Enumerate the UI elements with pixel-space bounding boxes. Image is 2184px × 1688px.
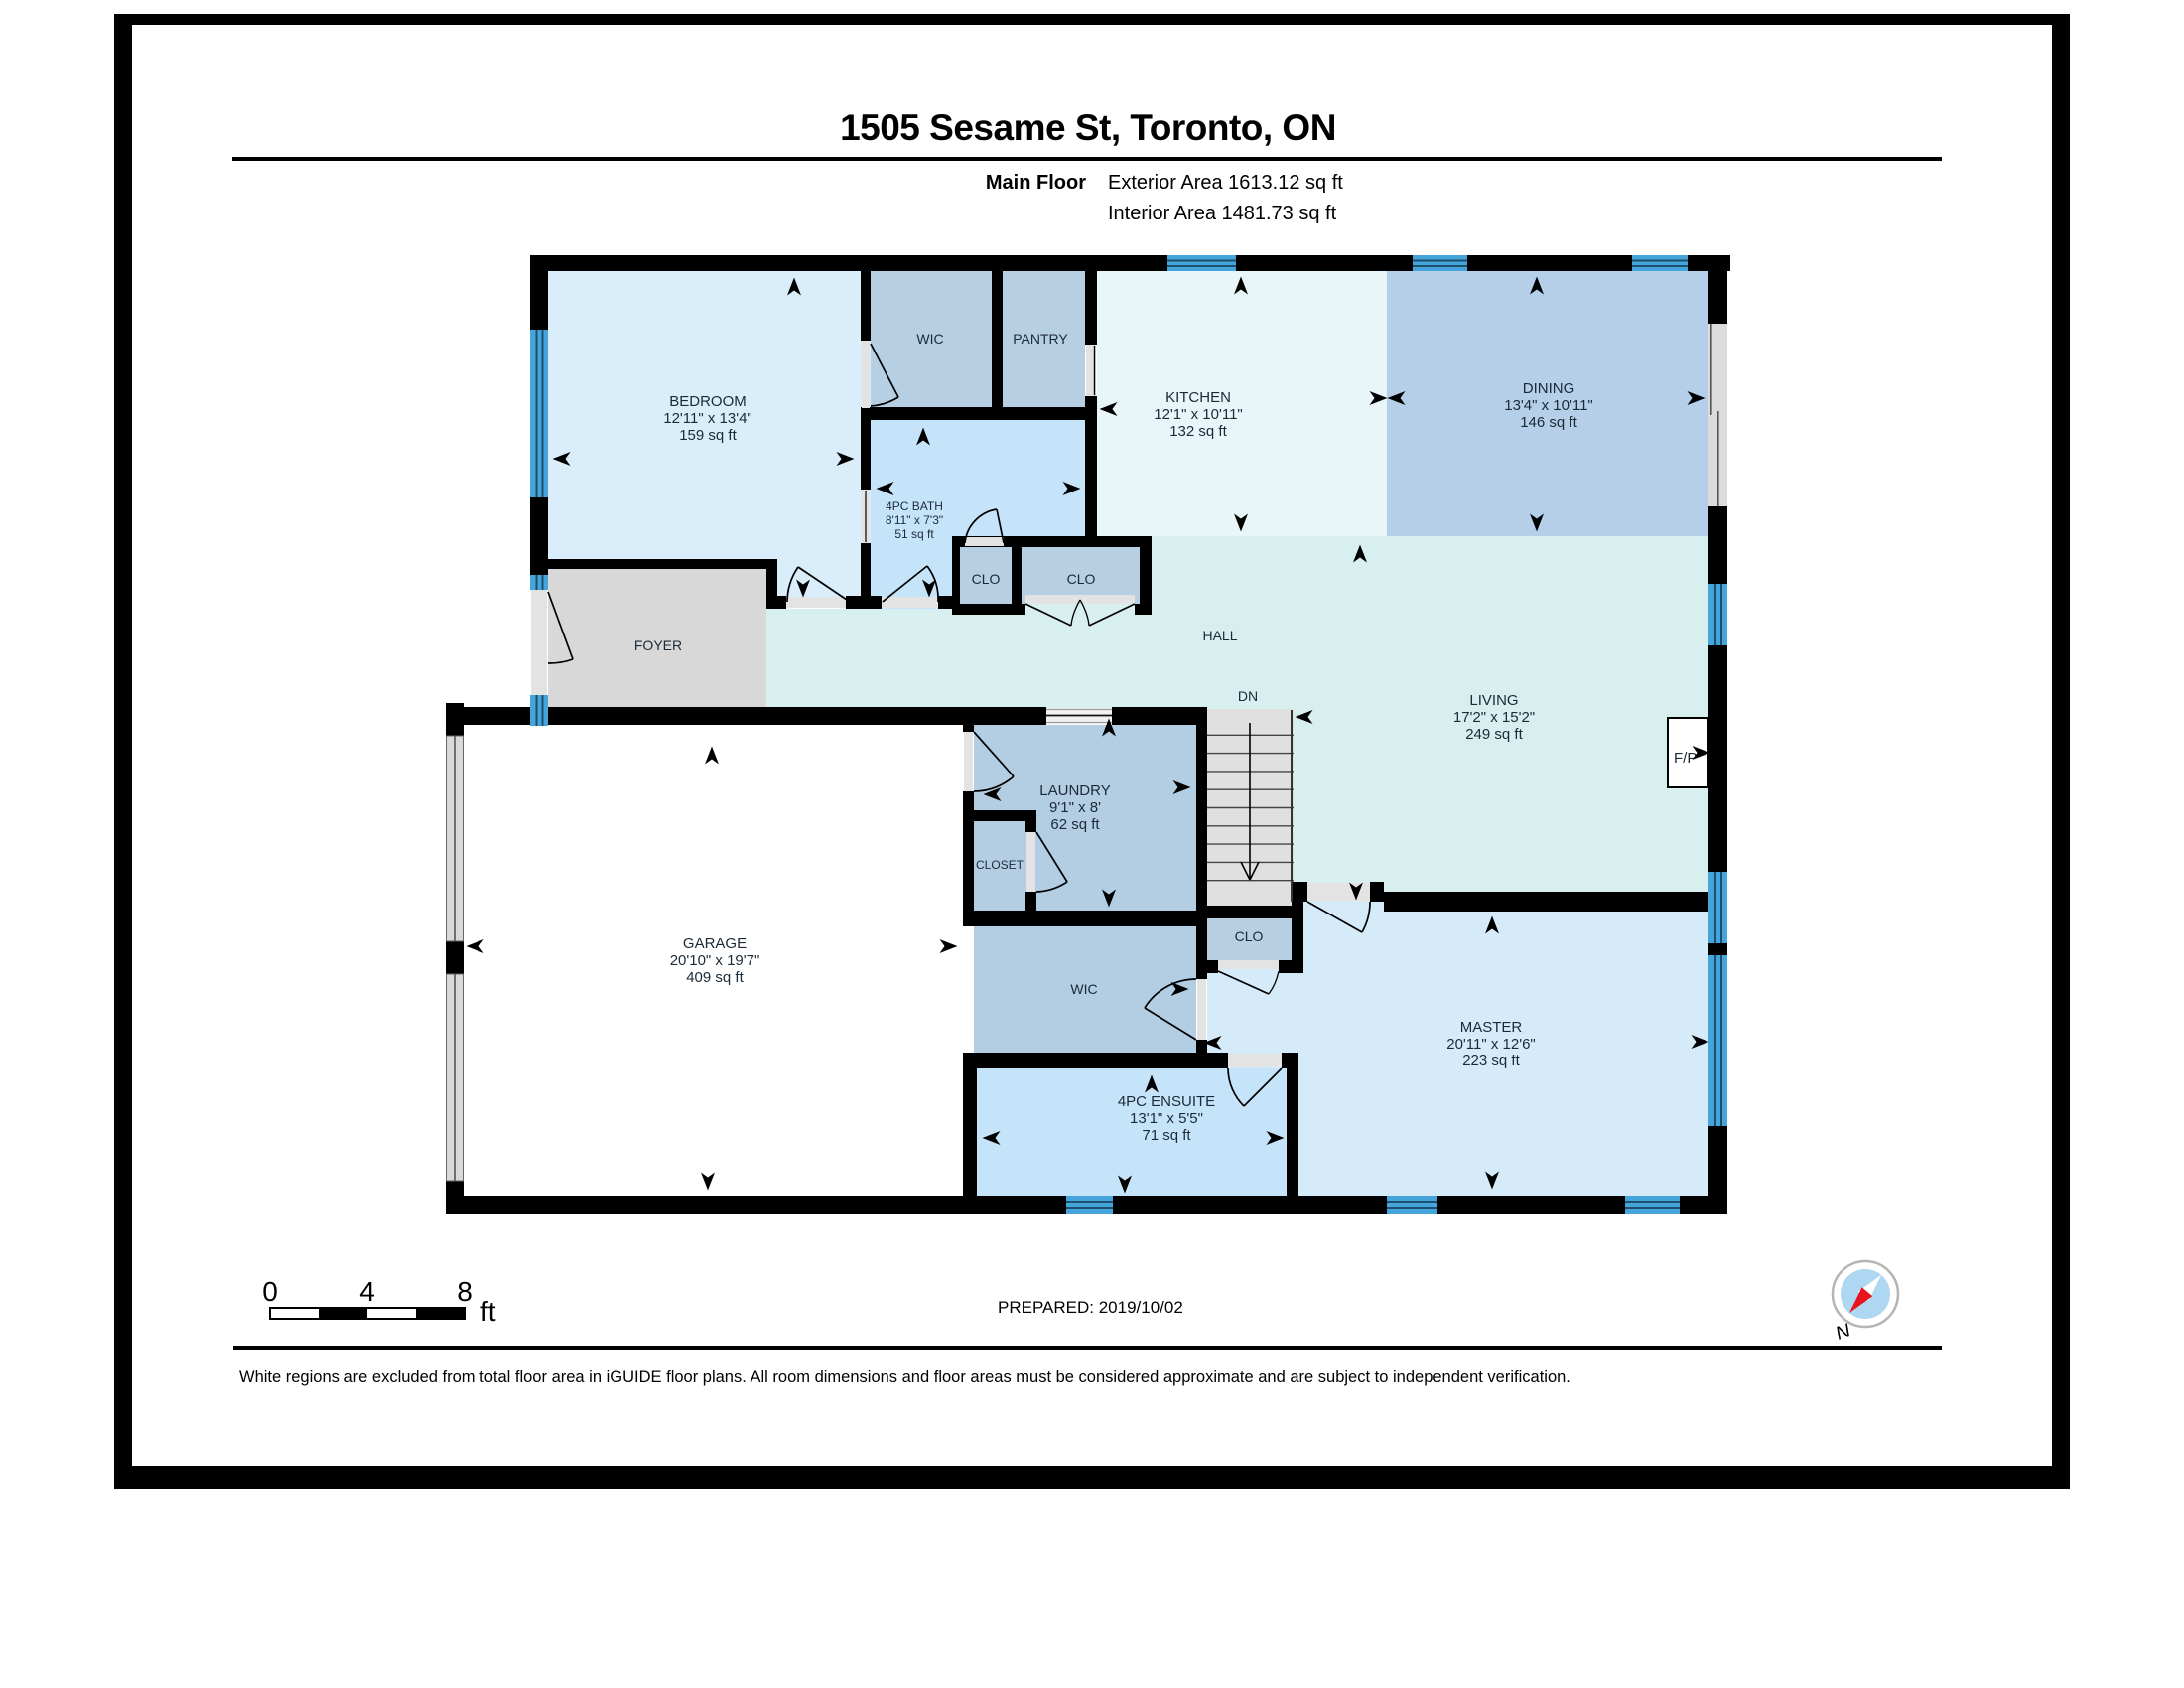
svg-text:LAUNDRY: LAUNDRY <box>1039 782 1110 799</box>
svg-text:ft: ft <box>480 1296 496 1327</box>
svg-text:12'1" x 10'11": 12'1" x 10'11" <box>1154 406 1243 423</box>
svg-text:KITCHEN: KITCHEN <box>1165 389 1231 406</box>
svg-text:LIVING: LIVING <box>1469 692 1518 709</box>
svg-text:GARAGE: GARAGE <box>683 935 747 952</box>
svg-text:1505 Sesame St, Toronto, ON: 1505 Sesame St, Toronto, ON <box>840 107 1336 148</box>
svg-text:CLOSET: CLOSET <box>976 858 1024 872</box>
svg-text:51 sq ft: 51 sq ft <box>894 527 934 541</box>
svg-text:WIC: WIC <box>916 331 943 347</box>
svg-text:CLO: CLO <box>1235 928 1264 944</box>
svg-text:146 sq ft: 146 sq ft <box>1520 414 1577 431</box>
svg-text:White regions are excluded fro: White regions are excluded from total fl… <box>239 1368 1570 1386</box>
svg-text:13'4" x 10'11": 13'4" x 10'11" <box>1504 397 1593 414</box>
svg-text:MASTER: MASTER <box>1460 1019 1523 1036</box>
svg-text:132 sq ft: 132 sq ft <box>1169 423 1227 440</box>
svg-text:PANTRY: PANTRY <box>1013 331 1068 347</box>
svg-text:12'11" x 13'4": 12'11" x 13'4" <box>663 410 752 427</box>
svg-text:409 sq ft: 409 sq ft <box>686 969 744 986</box>
svg-text:CLO: CLO <box>972 571 1001 587</box>
svg-text:159 sq ft: 159 sq ft <box>679 427 737 444</box>
svg-text:249 sq ft: 249 sq ft <box>1465 726 1523 743</box>
svg-text:DN: DN <box>1238 688 1258 704</box>
svg-text:0: 0 <box>262 1276 278 1307</box>
svg-text:4PC BATH: 4PC BATH <box>886 499 943 513</box>
svg-text:FOYER: FOYER <box>634 637 682 653</box>
svg-text:WIC: WIC <box>1070 981 1097 997</box>
svg-text:9'1" x 8': 9'1" x 8' <box>1049 799 1101 816</box>
svg-text:8'11" x 7'3": 8'11" x 7'3" <box>886 513 943 527</box>
svg-text:20'10" x 19'7": 20'10" x 19'7" <box>670 952 760 969</box>
svg-text:20'11" x 12'6": 20'11" x 12'6" <box>1446 1036 1536 1053</box>
svg-text:CLO: CLO <box>1067 571 1096 587</box>
svg-text:223 sq ft: 223 sq ft <box>1462 1053 1520 1069</box>
svg-text:Interior Area 1481.73 sq ft: Interior Area 1481.73 sq ft <box>1108 203 1337 224</box>
svg-text:BEDROOM: BEDROOM <box>669 393 747 410</box>
svg-text:17'2" x 15'2": 17'2" x 15'2" <box>1453 709 1535 726</box>
svg-text:8: 8 <box>457 1276 473 1307</box>
svg-text:HALL: HALL <box>1202 628 1237 643</box>
svg-text:Main Floor: Main Floor <box>986 172 1086 194</box>
svg-text:4PC ENSUITE: 4PC ENSUITE <box>1118 1093 1215 1110</box>
svg-text:62 sq ft: 62 sq ft <box>1050 816 1100 833</box>
svg-text:13'1" x 5'5": 13'1" x 5'5" <box>1130 1110 1203 1127</box>
svg-text:71 sq ft: 71 sq ft <box>1142 1127 1191 1144</box>
svg-text:DINING: DINING <box>1523 380 1575 397</box>
svg-text:Exterior Area 1613.12 sq ft: Exterior Area 1613.12 sq ft <box>1108 172 1343 194</box>
svg-text:PREPARED: 2019/10/02: PREPARED: 2019/10/02 <box>998 1298 1183 1317</box>
svg-text:4: 4 <box>359 1276 375 1307</box>
